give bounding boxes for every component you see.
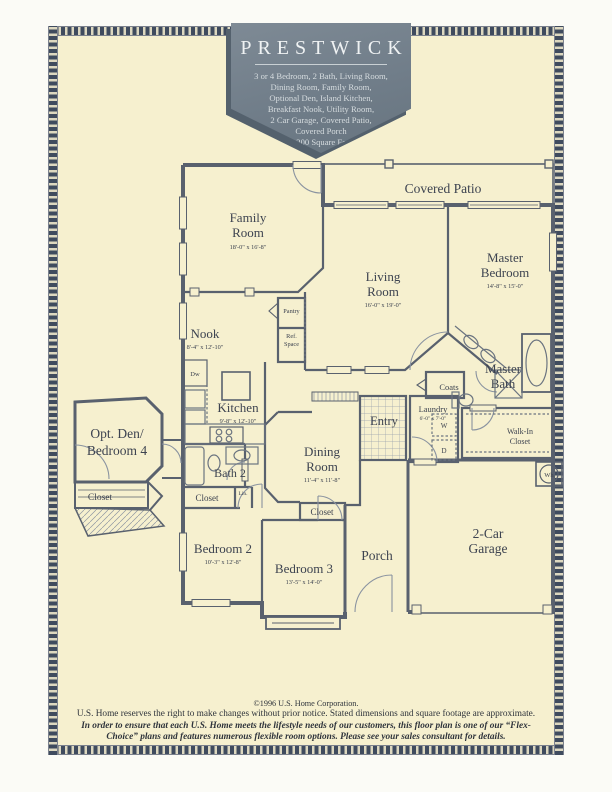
label-master-bath-1: Master xyxy=(485,361,522,376)
disclaimer-line: U.S. Home reserves the right to make cha… xyxy=(56,709,556,720)
dims-bedroom-3: 13'-5" x 14'-0" xyxy=(286,579,323,586)
label-walk-in-closet-2: Closet xyxy=(510,437,531,446)
copyright-line: ©1996 U.S. Home Corporation. xyxy=(56,699,556,709)
label-master-bath-2: Bath xyxy=(491,376,516,391)
banner-face: PRESTWICK 3 or 4 Bedroom, 2 Bath, Living… xyxy=(231,23,411,153)
label-dining-room-2: Room xyxy=(306,459,338,474)
label-living-room-2: Room xyxy=(367,284,399,299)
plan-banner: PRESTWICK 3 or 4 Bedroom, 2 Bath, Living… xyxy=(231,23,411,153)
dims-bedroom-2: 10'-3" x 12'-8" xyxy=(205,559,242,566)
label-family-room-1: Family xyxy=(230,210,267,225)
floor-plan-page: Covered Patio Family Room 18'-0" x 16'-8… xyxy=(0,0,612,792)
label-opt-den-2: Bedroom 4 xyxy=(87,443,148,458)
dims-nook: 8'-4" x 12'-10" xyxy=(187,344,224,351)
label-garage-1: 2-Car xyxy=(473,526,504,541)
banner-line-3: Optional Den, Island Kitchen, xyxy=(235,93,407,104)
banner-line-1: 3 or 4 Bedroom, 2 Bath, Living Room, xyxy=(235,71,407,82)
label-closet-den: Closet xyxy=(88,493,113,503)
label-pantry: Pantry xyxy=(283,308,300,315)
label-ref-space-2: Space xyxy=(284,341,299,348)
label-dining-room-1: Dining xyxy=(304,444,341,459)
label-porch: Porch xyxy=(361,548,393,563)
label-bedroom-3: Bedroom 3 xyxy=(275,561,333,576)
label-master-bedroom-2: Bedroom xyxy=(481,265,529,280)
label-closet-bed3: Closet xyxy=(310,507,334,517)
label-coats: Coats xyxy=(439,382,458,392)
label-dryer: D xyxy=(441,447,446,455)
label-dishwasher: Dw xyxy=(190,371,200,378)
label-garage-2: Garage xyxy=(469,541,508,556)
label-kitchen: Kitchen xyxy=(217,400,259,415)
banner-rule xyxy=(255,64,387,65)
label-bath-2: Bath 2 xyxy=(214,466,246,480)
label-laundry: Laundry xyxy=(419,404,449,414)
label-opt-den-1: Opt. Den/ xyxy=(90,426,143,441)
banner-line-2: Dining Room, Family Room, xyxy=(235,82,407,93)
label-ref-space-1: Ref. xyxy=(286,333,297,340)
label-nook: Nook xyxy=(191,326,220,341)
banner-description: 3 or 4 Bedroom, 2 Bath, Living Room, Din… xyxy=(235,71,407,148)
door-arcs xyxy=(75,165,497,612)
label-family-room-2: Room xyxy=(232,225,264,240)
footer: ©1996 U.S. Home Corporation. U.S. Home r… xyxy=(56,699,556,742)
dims-master-bedroom: 14'-8" x 15'-0" xyxy=(487,283,524,290)
dims-family-room: 18'-0" x 16'-8" xyxy=(230,244,267,251)
plan-title: PRESTWICK xyxy=(231,37,411,60)
flex-choice-line: In order to ensure that each U.S. Home m… xyxy=(67,721,545,742)
label-washer: W xyxy=(441,422,448,430)
label-master-bedroom-1: Master xyxy=(487,250,524,265)
label-covered-patio: Covered Patio xyxy=(405,181,482,196)
label-linen: Lin. xyxy=(238,491,248,497)
banner-line-4: Breakfast Nook, Utility Room, xyxy=(235,104,407,115)
dims-living-room: 16'-0" x 19'-0" xyxy=(365,302,402,309)
dims-dining-room: 11'-4" x 11'-8" xyxy=(304,477,341,484)
optional-den-structure xyxy=(75,398,183,536)
label-bedroom-2: Bedroom 2 xyxy=(194,541,252,556)
label-entry: Entry xyxy=(370,414,399,428)
dims-kitchen: 9'-8" x 12'-10" xyxy=(220,418,257,425)
label-closet-hall: Closet xyxy=(195,493,219,503)
label-water-heater: Wh xyxy=(544,472,554,479)
label-walk-in-closet-1: Walk-In xyxy=(507,427,533,436)
label-living-room-1: Living xyxy=(366,269,401,284)
banner-line-7: 2,200 Square Feet xyxy=(235,137,407,148)
